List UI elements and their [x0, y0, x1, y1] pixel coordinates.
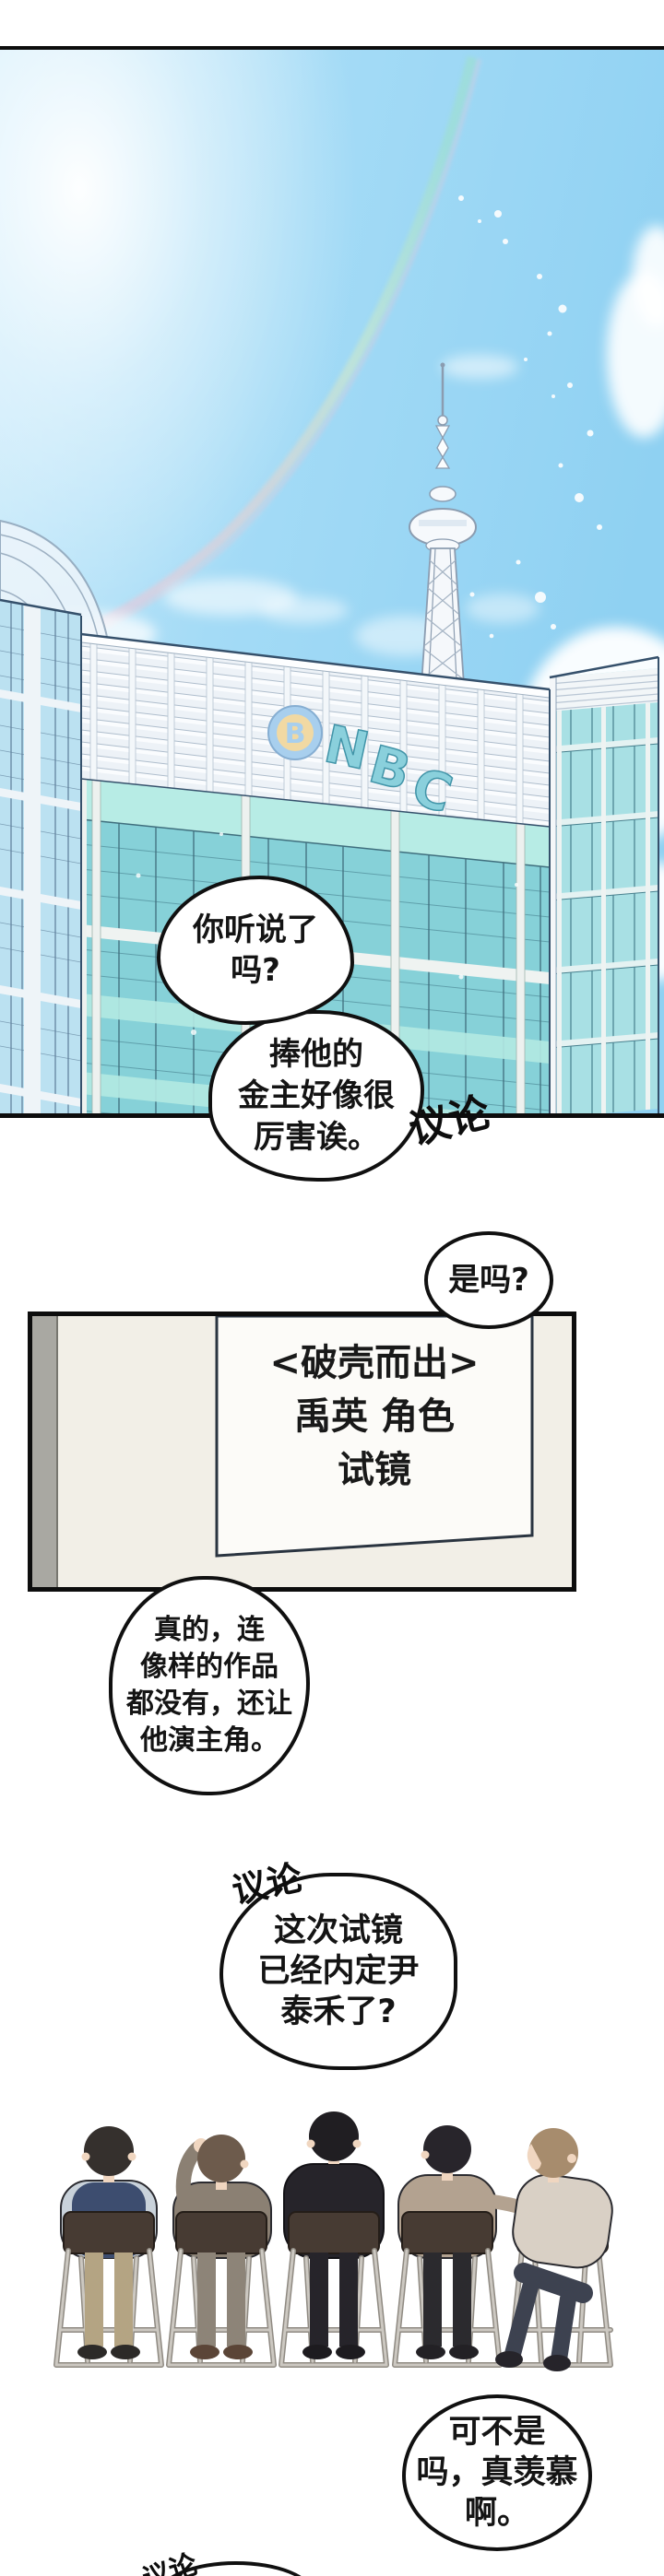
candidate-1 — [56, 2126, 161, 2365]
candidate-5 — [495, 2128, 616, 2371]
candidate-2 — [169, 2135, 274, 2365]
left-glass-face — [0, 601, 81, 1113]
nbc-badge-letter: B — [285, 718, 306, 750]
candidate-3 — [281, 2111, 386, 2365]
audition-sign-text: <破壳而出> 禹英 角色 试镜 — [217, 1336, 532, 1497]
right-tower-face — [549, 668, 658, 1113]
speech-bubble-sponsor: 捧他的 金主好像很 厉害诶。 — [208, 1010, 424, 1182]
sfx-chatter-3: 议论 — [136, 2541, 202, 2576]
panel-audition-sign: <破壳而出> 禹英 角色 试镜 — [28, 1312, 576, 1592]
speech-bubble-really: 是吗? — [424, 1231, 553, 1329]
speech-bubble-no-decent-works: 真的，连 像样的作品 都没有，还让 他演主角。 — [109, 1576, 310, 1795]
speech-bubble-envious: 可不是 吗，真羡慕 啊。 — [402, 2394, 592, 2551]
audition-candidates-illustration — [0, 2092, 664, 2387]
comic-page: B N B C 捧他的 金主好像很 厉害诶。 你听说了 吗? 议论 是吗? — [0, 0, 664, 2576]
